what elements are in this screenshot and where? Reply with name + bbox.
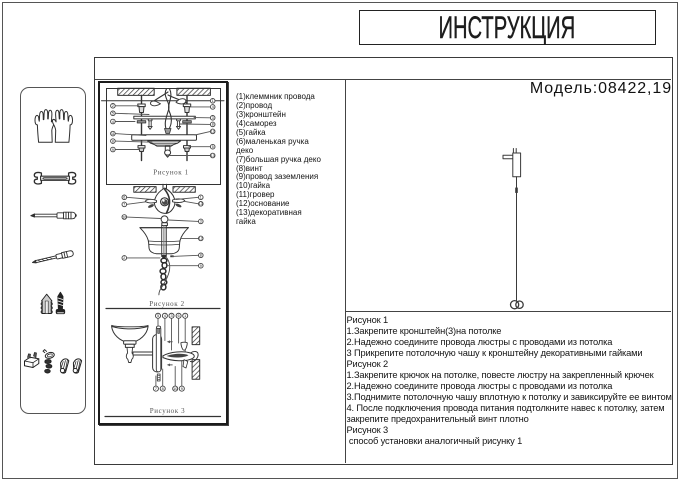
svg-text:7: 7 xyxy=(155,387,157,391)
svg-text:9: 9 xyxy=(200,264,202,268)
svg-text:6: 6 xyxy=(123,196,125,200)
svg-text:1: 1 xyxy=(200,196,202,200)
svg-text:5: 5 xyxy=(212,145,214,149)
svg-text:11: 11 xyxy=(111,132,115,136)
svg-text:6: 6 xyxy=(178,314,180,318)
svg-text:7: 7 xyxy=(123,203,125,207)
svg-text:10: 10 xyxy=(173,387,177,391)
svg-text:4: 4 xyxy=(112,120,114,124)
svg-text:3: 3 xyxy=(212,116,214,120)
svg-text:10: 10 xyxy=(122,215,126,219)
svg-text:13: 13 xyxy=(211,154,215,158)
svg-text:Рисунок 2: Рисунок 2 xyxy=(149,300,184,308)
svg-text:8: 8 xyxy=(200,254,202,258)
svg-text:5: 5 xyxy=(157,314,159,318)
svg-text:2: 2 xyxy=(123,256,125,260)
svg-text:8: 8 xyxy=(162,387,164,391)
svg-text:Рисунок 3: Рисунок 3 xyxy=(150,407,185,415)
svg-text:13: 13 xyxy=(199,202,203,206)
svg-text:5: 5 xyxy=(112,112,114,116)
svg-text:3: 3 xyxy=(200,220,202,224)
svg-text:9: 9 xyxy=(181,387,183,391)
svg-text:3: 3 xyxy=(170,314,172,318)
svg-text:4: 4 xyxy=(164,314,166,318)
svg-text:Рисунок 1: Рисунок 1 xyxy=(153,169,188,177)
svg-text:4: 4 xyxy=(212,105,214,109)
svg-text:8: 8 xyxy=(212,123,214,127)
svg-text:2: 2 xyxy=(112,104,114,108)
svg-text:12: 12 xyxy=(211,130,215,134)
svg-text:8: 8 xyxy=(112,139,114,143)
svg-text:1: 1 xyxy=(184,314,186,318)
svg-text:9: 9 xyxy=(112,148,114,152)
svg-text:12: 12 xyxy=(199,237,203,241)
svg-text:1: 1 xyxy=(212,99,214,103)
